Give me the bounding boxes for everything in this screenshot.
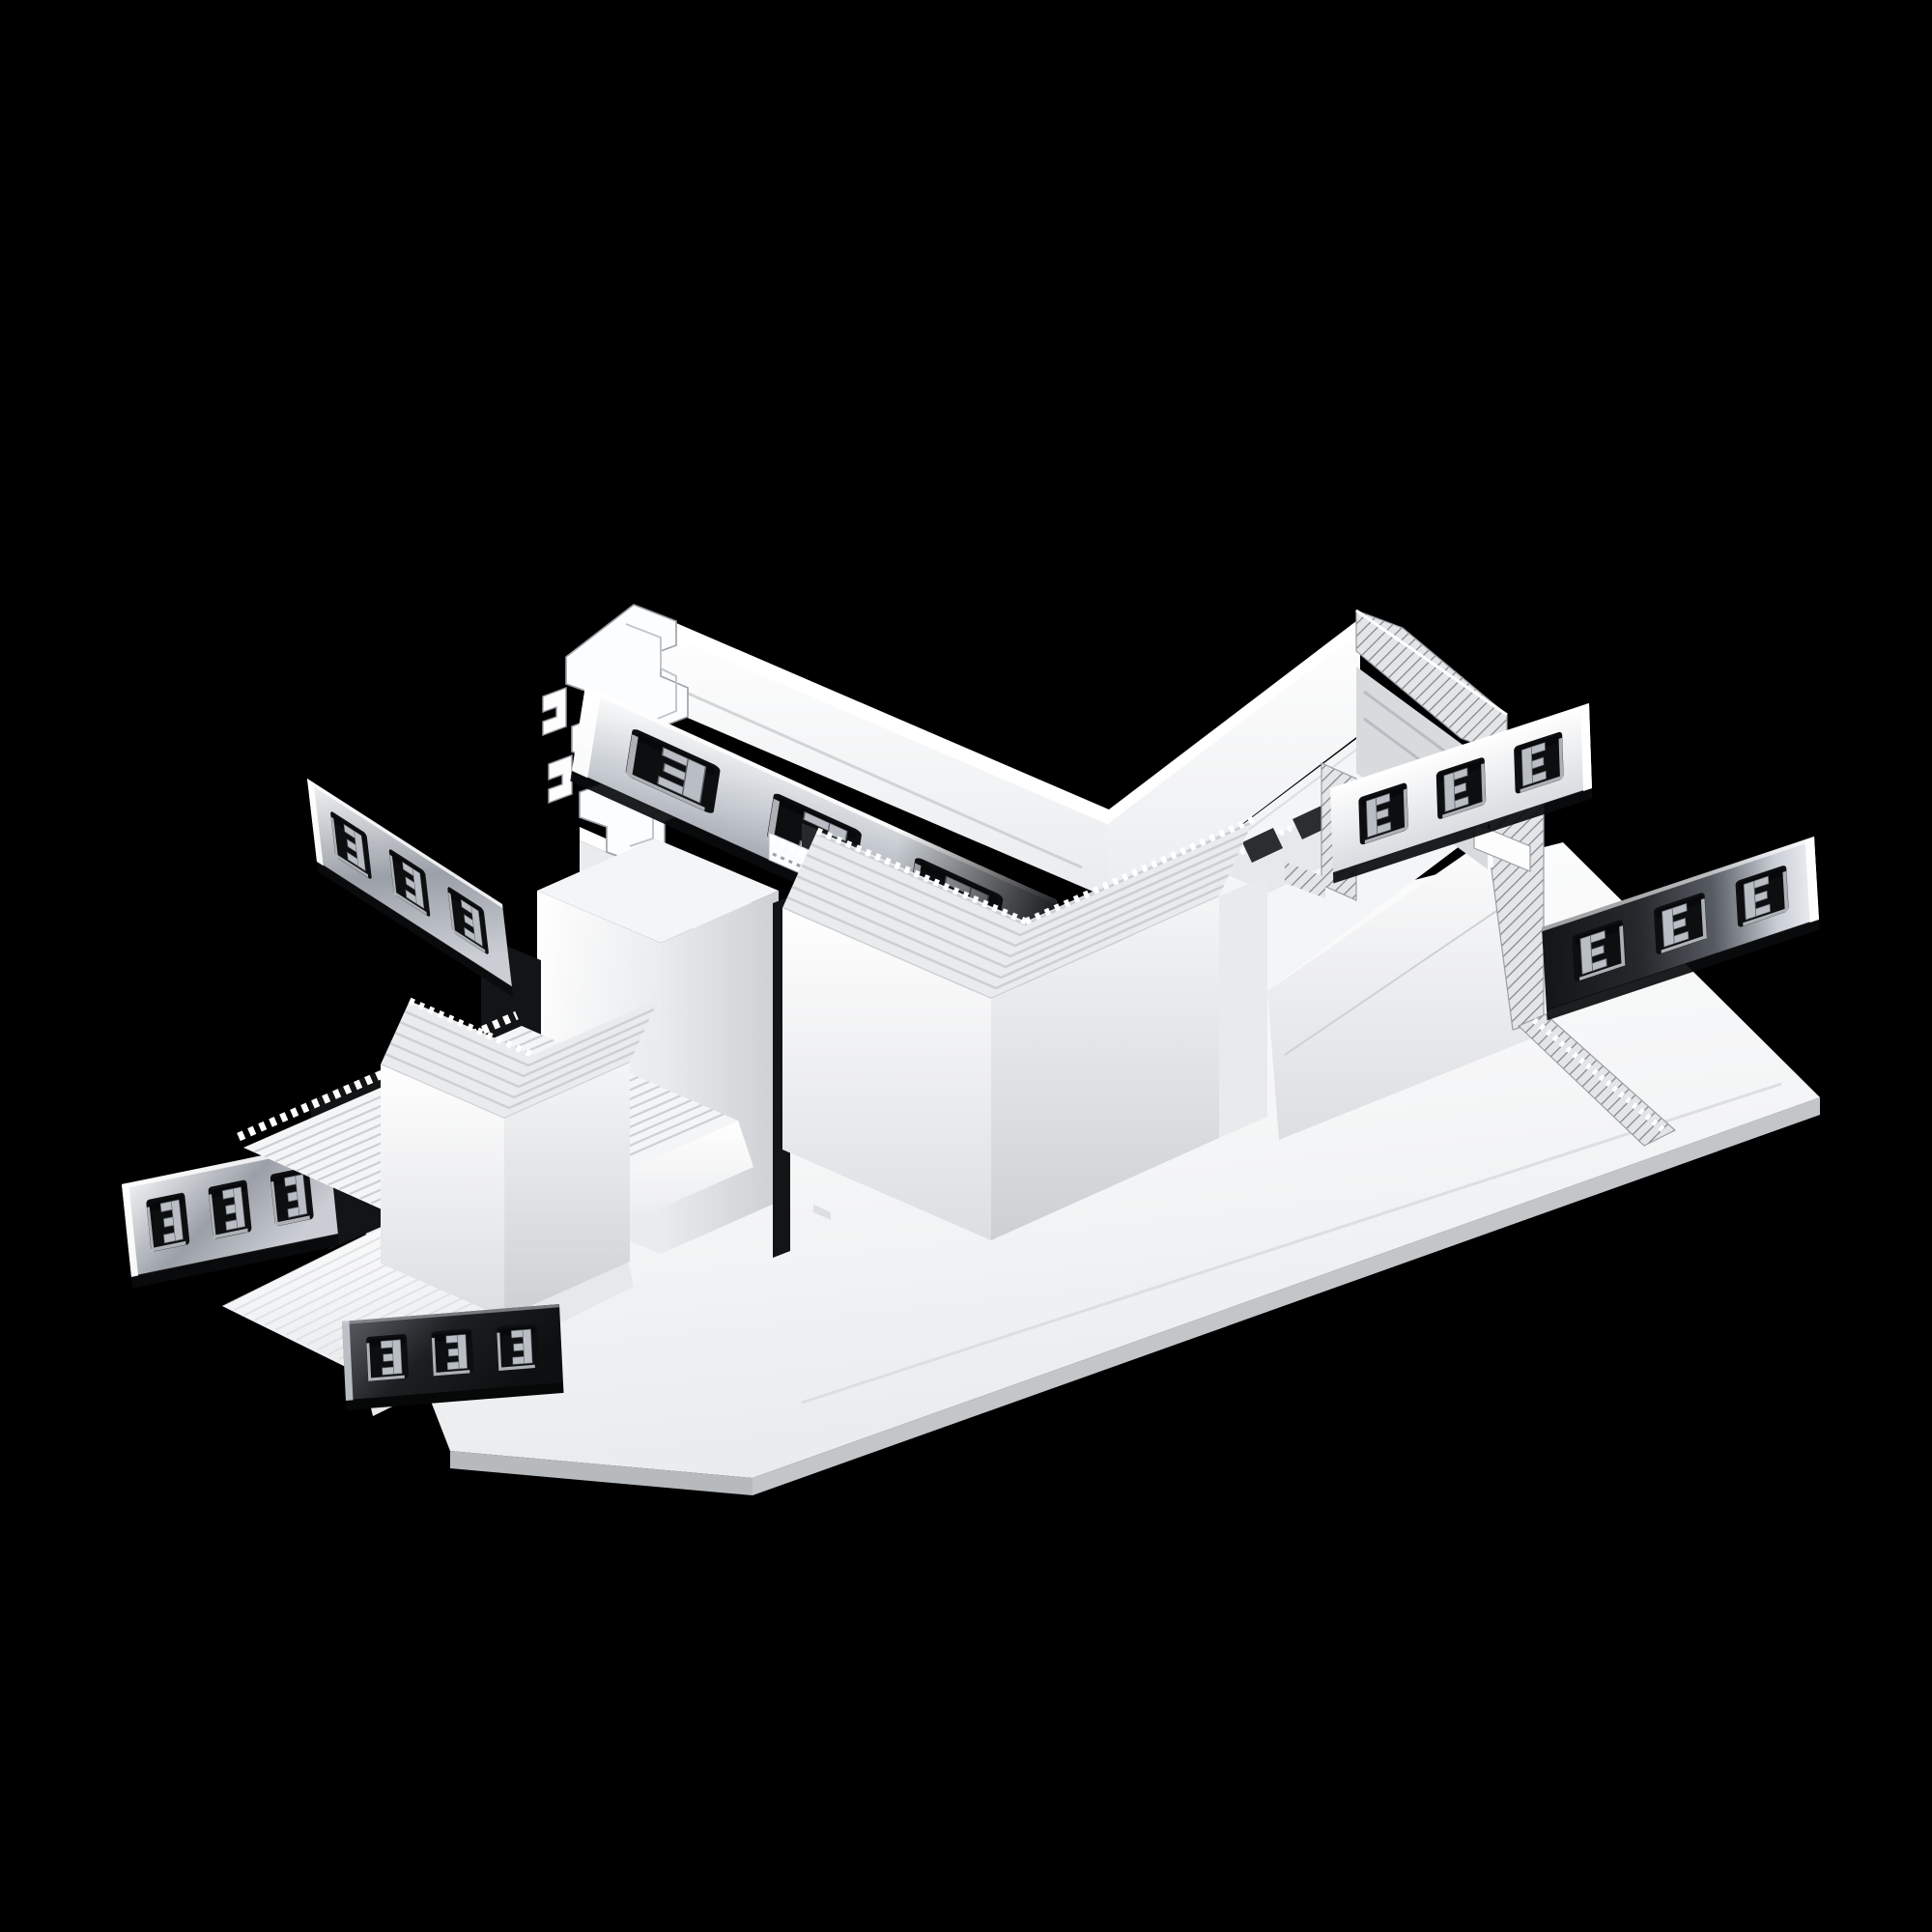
- comb-bracket: [769, 833, 1005, 962]
- mounting-strap-upper-left: [307, 779, 541, 1070]
- flange-plate: [353, 842, 1820, 1495]
- ribbed-cover-left-arm: [239, 1015, 753, 1291]
- cut-cap-white: [1474, 823, 1530, 871]
- ribbed-corner-center: [782, 819, 1254, 1240]
- black-background: [0, 0, 1932, 1932]
- mounting-strap-right-chrome: [1542, 837, 1820, 1020]
- right-arm-backwall: [1109, 618, 1360, 925]
- drywall-clip-hook: [543, 688, 566, 735]
- flange-cut-serrated: [1519, 1014, 1675, 1146]
- branch-channel: [580, 605, 1109, 970]
- product-render-canvas: [0, 0, 1932, 1932]
- mounting-strap-right-white: [1330, 703, 1592, 884]
- track-pocket: [1209, 817, 1374, 893]
- right-arm-front-face: [1267, 808, 1544, 1140]
- mounting-strap-far-left: [122, 1142, 339, 1289]
- junction-housing: [537, 838, 790, 1258]
- pocket-clip: [1293, 805, 1333, 839]
- shadow-slot: [309, 1059, 425, 1250]
- section-cut-face-white: [543, 605, 694, 862]
- branch-backwall-top: [634, 605, 1109, 825]
- left-arm-end: [122, 1015, 753, 1291]
- drywall-clip-hook: [549, 755, 572, 803]
- track-clip-dark: [802, 823, 858, 1220]
- flange-left-wedge: [222, 1177, 634, 1416]
- ribbed-corner-left: [381, 999, 659, 1318]
- right-arm-deck: [1109, 736, 1519, 991]
- pocket-clip: [1242, 828, 1283, 863]
- right-arm: [966, 618, 1544, 1140]
- mounting-strap-bottom-dark: [342, 1304, 563, 1410]
- section-cut-hatched: [1285, 611, 1675, 1146]
- mounting-strap-channel: [570, 686, 1057, 996]
- shadow-slot: [773, 896, 790, 1258]
